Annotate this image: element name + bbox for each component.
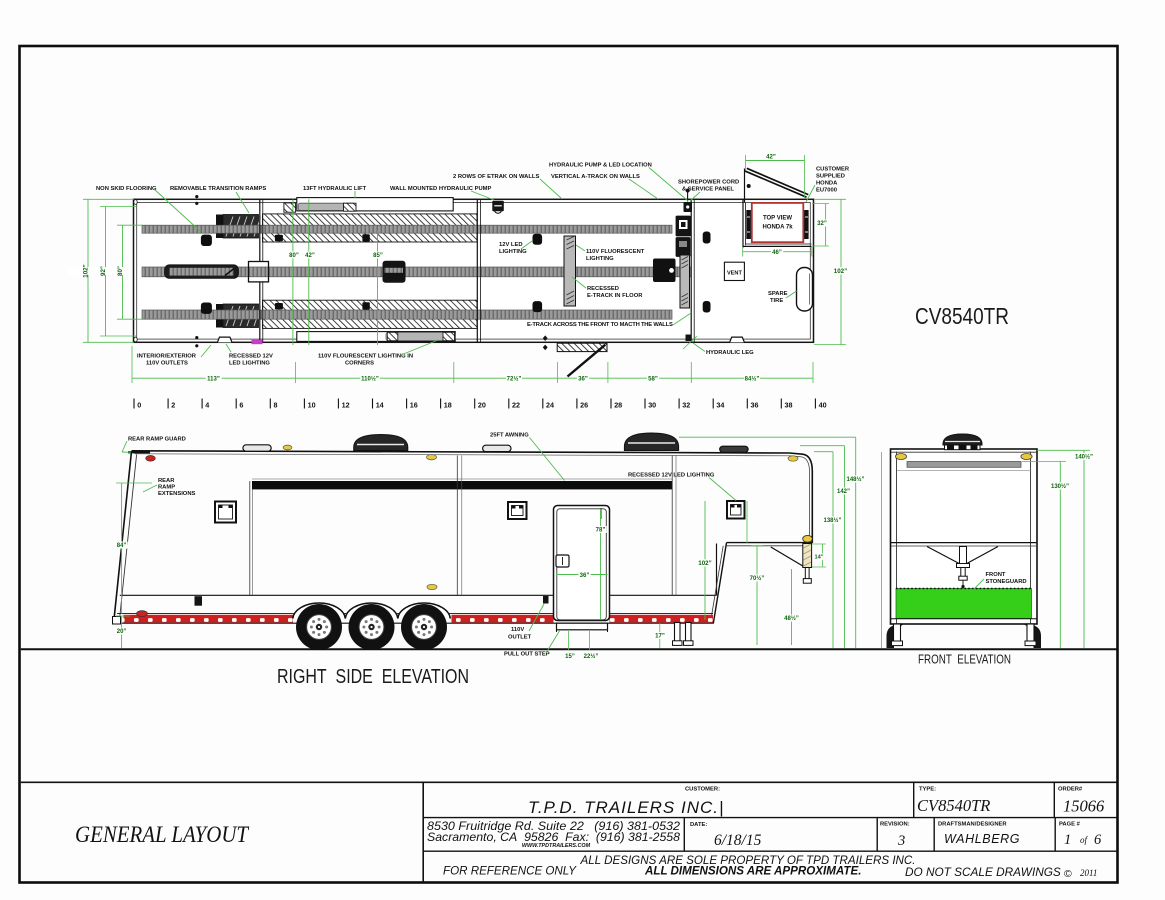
svg-text:15066: 15066	[1063, 797, 1105, 816]
svg-text:6/18/15: 6/18/15	[714, 832, 762, 849]
svg-text:RAMP: RAMP	[158, 485, 175, 491]
svg-text:HYDRAULIC PUMP & LED LOCATION: HYDRAULIC PUMP & LED LOCATION	[549, 163, 652, 169]
svg-text:17”: 17”	[655, 634, 665, 640]
svg-text:102”: 102”	[83, 264, 90, 277]
svg-text:LIGHTING: LIGHTING	[586, 256, 614, 262]
svg-text:RECESSED 12V: RECESSED 12V	[229, 354, 273, 360]
svg-text:28: 28	[614, 401, 622, 410]
svg-text:8: 8	[274, 401, 278, 410]
svg-text:TIRE: TIRE	[770, 298, 783, 304]
svg-text:OUTLET: OUTLET	[508, 635, 532, 641]
svg-text:10: 10	[308, 401, 316, 410]
svg-text:20: 20	[478, 401, 486, 410]
svg-text:FRONT: FRONT	[986, 572, 1006, 578]
svg-text:SPARE: SPARE	[768, 291, 788, 297]
svg-text:80”: 80”	[289, 253, 299, 259]
svg-text:36: 36	[751, 401, 759, 410]
svg-text:84”: 84”	[117, 543, 127, 549]
svg-text:REAR RAMP GUARD: REAR RAMP GUARD	[128, 437, 186, 443]
svg-text:ALL DIMENSIONS ARE APPROXIMATE: ALL DIMENSIONS ARE APPROXIMATE.	[644, 865, 861, 878]
svg-text:PULL OUT STEP: PULL OUT STEP	[504, 652, 550, 658]
svg-text:HYDRAULIC LEG: HYDRAULIC LEG	[706, 350, 754, 356]
svg-text:13FT HYDRAULIC LIFT: 13FT HYDRAULIC LIFT	[303, 186, 367, 192]
svg-text:42”: 42”	[305, 253, 315, 259]
svg-text:CORNERS: CORNERS	[345, 361, 374, 367]
svg-text:TYPE:: TYPE:	[919, 787, 936, 793]
svg-text:36”: 36”	[580, 573, 590, 579]
svg-text:0: 0	[137, 401, 141, 410]
svg-text:85”: 85”	[373, 253, 383, 259]
svg-text:1: 1	[1064, 832, 1071, 848]
svg-text:HONDA: HONDA	[816, 181, 838, 187]
svg-text:ORDER#: ORDER#	[1058, 787, 1083, 793]
svg-text:RIGHT SIDE ELEVATION: RIGHT SIDE ELEVATION	[277, 666, 469, 688]
svg-text:110V FLUORESCENT: 110V FLUORESCENT	[586, 249, 645, 255]
svg-text:VERTICAL A-TRACK ON WALLS: VERTICAL A-TRACK ON WALLS	[551, 174, 640, 180]
svg-text:LIGHTING: LIGHTING	[499, 249, 527, 255]
svg-text:CV8540TR: CV8540TR	[917, 796, 990, 815]
svg-text:80”: 80”	[117, 266, 124, 276]
svg-text:14”: 14”	[814, 555, 823, 561]
svg-text:30: 30	[648, 401, 656, 410]
svg-text:NON SKID FLOORING: NON SKID FLOORING	[96, 186, 157, 192]
svg-text:DATE:: DATE:	[690, 822, 707, 828]
svg-text:RECESSED: RECESSED	[587, 286, 619, 292]
svg-text:2 ROWS OF ETRAK ON WALLS: 2 ROWS OF ETRAK ON WALLS	[453, 174, 539, 180]
svg-text:Sacramento, CA 95826 Fax: (: Sacramento, CA 95826 Fax: (916) 381-2558	[427, 830, 680, 844]
svg-text:LED LIGHTING: LED LIGHTING	[229, 361, 270, 367]
svg-text:E-TRACK IN FLOOR: E-TRACK IN FLOOR	[587, 293, 643, 299]
svg-text:18: 18	[444, 401, 452, 410]
svg-text:FOR REFERENCE ONLY: FOR REFERENCE ONLY	[443, 865, 577, 878]
svg-text:32”: 32”	[817, 221, 827, 227]
svg-text:26: 26	[580, 401, 588, 410]
svg-text:92”: 92”	[100, 266, 107, 276]
svg-text:T.P.D. TRAILERS INC.|: T.P.D. TRAILERS INC.|	[528, 798, 724, 817]
svg-text:102”: 102”	[834, 268, 847, 275]
svg-text:RECESSED 12V LED LIGHTING: RECESSED 12V LED LIGHTING	[628, 473, 715, 479]
svg-text:110V OUTLETS: 110V OUTLETS	[146, 361, 188, 367]
svg-text:36”: 36”	[578, 377, 588, 383]
svg-text:EXTENSIONS: EXTENSIONS	[158, 491, 195, 497]
svg-text:2: 2	[171, 401, 175, 410]
svg-text:SHOREPOWER CORD: SHOREPOWER CORD	[678, 180, 739, 186]
svg-text:34: 34	[716, 401, 724, 410]
svg-text:REVISION:: REVISION:	[880, 822, 910, 828]
svg-text:110V FLOURESCENT LIGHTING IN: 110V FLOURESCENT LIGHTING IN	[318, 354, 413, 360]
svg-text:32: 32	[682, 401, 690, 410]
svg-text:WAHLBERG: WAHLBERG	[944, 832, 1020, 846]
svg-text:70½”: 70½”	[750, 575, 765, 582]
svg-text:40: 40	[819, 401, 827, 410]
svg-text:58”: 58”	[648, 377, 658, 383]
svg-text:72½”: 72½”	[507, 376, 522, 383]
svg-text:CV8540TR: CV8540TR	[915, 303, 1009, 329]
svg-text:DO NOT SCALE DRAWINGS: DO NOT SCALE DRAWINGS	[905, 865, 1061, 879]
svg-text:46”: 46”	[772, 250, 782, 256]
svg-text:24: 24	[546, 401, 554, 410]
svg-text:110V: 110V	[511, 627, 524, 633]
svg-text:CUSTOMER: CUSTOMER	[816, 167, 850, 173]
svg-text:12: 12	[342, 401, 350, 410]
svg-text:14: 14	[376, 401, 384, 410]
svg-text:20”: 20”	[117, 629, 127, 635]
svg-text:6: 6	[1094, 832, 1102, 848]
svg-text:HONDA 7k: HONDA 7k	[762, 225, 793, 231]
svg-text:REAR: REAR	[158, 478, 175, 484]
svg-text:25FT AWNING: 25FT AWNING	[490, 433, 529, 439]
svg-text:2011: 2011	[1080, 868, 1097, 878]
svg-text:GENERAL LAYOUT: GENERAL LAYOUT	[75, 822, 250, 847]
svg-text:SUPPLIED: SUPPLIED	[816, 174, 845, 180]
svg-text:©: ©	[1064, 868, 1072, 880]
svg-text:102”: 102”	[698, 560, 711, 567]
svg-text:15”: 15”	[565, 654, 575, 660]
svg-text:22½”: 22½”	[584, 653, 599, 660]
svg-text:WALL MOUNTED HYDRAULIC PUMP: WALL MOUNTED HYDRAULIC PUMP	[390, 186, 491, 192]
svg-text:140½”: 140½”	[1075, 454, 1093, 461]
svg-text:148½”: 148½”	[846, 476, 864, 483]
svg-text:REMOVABLE TRANSITION RAMPS: REMOVABLE TRANSITION RAMPS	[170, 186, 266, 192]
svg-text:22: 22	[512, 401, 520, 410]
svg-text:E-TRACK ACROSS THE FRONT TO MA: E-TRACK ACROSS THE FRONT TO MACTH THE WA…	[527, 322, 673, 328]
svg-text:16: 16	[410, 401, 418, 410]
svg-text:EU7000: EU7000	[816, 188, 837, 194]
svg-text:48½”: 48½”	[784, 615, 799, 622]
svg-text:4: 4	[205, 401, 209, 410]
svg-text:84½”: 84½”	[745, 376, 760, 383]
svg-text:DRAFTSMAN/DESIGNER: DRAFTSMAN/DESIGNER	[938, 822, 1007, 828]
svg-text:CUSTOMER:: CUSTOMER:	[685, 787, 720, 793]
svg-text:142”: 142”	[837, 489, 850, 495]
svg-text:WWW.TPDTRAILERS.COM: WWW.TPDTRAILERS.COM	[522, 843, 591, 849]
svg-text:TOP VIEW: TOP VIEW	[763, 216, 792, 222]
svg-text:FRONT ELEVATION: FRONT ELEVATION	[918, 653, 1011, 667]
svg-text:INTERIOR/EXTERIOR: INTERIOR/EXTERIOR	[137, 354, 197, 360]
svg-text:138½”: 138½”	[823, 517, 841, 524]
svg-text:78”: 78”	[596, 528, 606, 534]
svg-text:VENT: VENT	[727, 271, 743, 277]
svg-text:PAGE #: PAGE #	[1059, 822, 1081, 828]
svg-text:130½”: 130½”	[1051, 483, 1069, 490]
svg-text:110½”: 110½”	[361, 376, 379, 383]
svg-text:12V LED: 12V LED	[499, 242, 523, 248]
svg-text:38: 38	[785, 401, 793, 410]
svg-text:113”: 113”	[207, 377, 220, 383]
svg-text:42”: 42”	[766, 155, 776, 161]
svg-text:6: 6	[239, 401, 243, 410]
svg-text:3: 3	[897, 833, 905, 849]
svg-text:STONEGUARD: STONEGUARD	[986, 579, 1027, 585]
svg-text:& SERVICE PANEL: & SERVICE PANEL	[682, 187, 734, 193]
